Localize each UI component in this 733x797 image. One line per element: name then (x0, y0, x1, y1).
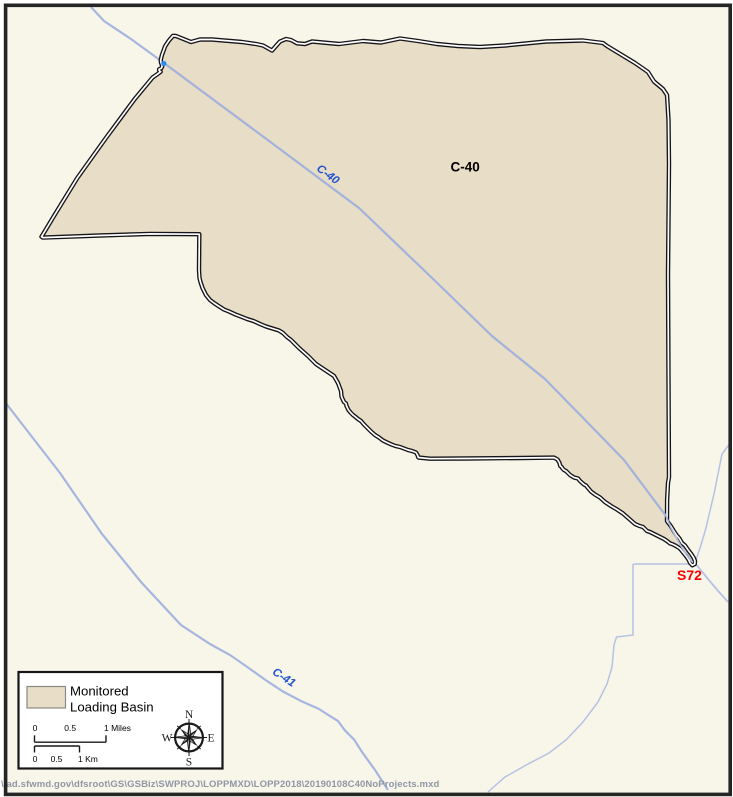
svg-text:0.5: 0.5 (64, 723, 76, 733)
svg-text:W: W (162, 733, 173, 745)
svg-text:\\ad.sfwmd.gov\dfsroot\GS\GSBi: \\ad.sfwmd.gov\dfsroot\GS\GSBiz\SWPROJ\L… (1, 779, 439, 790)
svg-text:1 Km: 1 Km (78, 754, 98, 764)
svg-text:S72: S72 (677, 567, 702, 583)
svg-text:C-40: C-40 (451, 160, 480, 175)
svg-text:S: S (186, 757, 192, 769)
svg-text:1 Miles: 1 Miles (104, 723, 131, 733)
svg-text:Monitored: Monitored (70, 684, 129, 699)
svg-text:N: N (185, 709, 194, 721)
svg-text:0.5: 0.5 (51, 754, 63, 764)
svg-text:0: 0 (33, 723, 38, 733)
svg-text:0: 0 (33, 754, 38, 764)
svg-text:E: E (207, 733, 214, 745)
svg-text:Loading Basin: Loading Basin (70, 700, 154, 715)
